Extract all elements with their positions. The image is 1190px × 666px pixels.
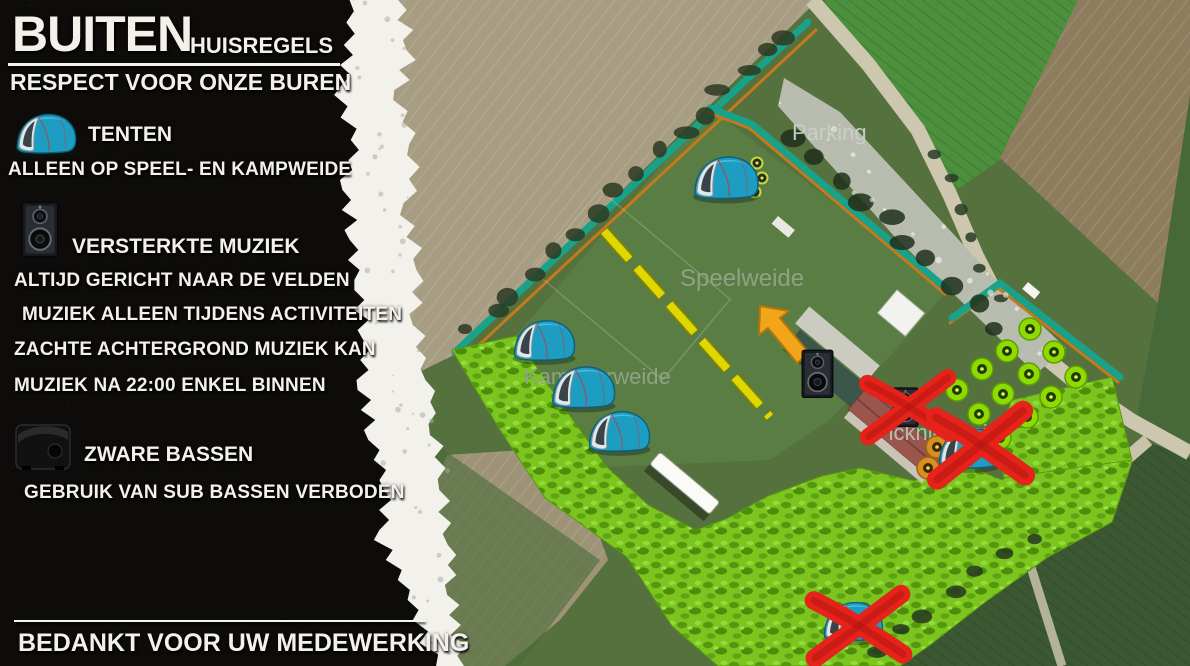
paper-speckle xyxy=(380,460,386,466)
paper-speckle xyxy=(363,1,368,6)
paper-speckle xyxy=(392,375,394,377)
panel-noise xyxy=(305,612,307,614)
paper-speckle xyxy=(398,225,401,228)
panel-noise xyxy=(331,382,333,384)
panel-noise xyxy=(120,661,122,663)
panel-noise xyxy=(316,539,318,541)
rule-heading-bassen: ZWARE BASSEN xyxy=(84,444,253,466)
paper-speckle xyxy=(355,66,359,70)
paper-speckle xyxy=(417,349,421,353)
tent-icon xyxy=(10,108,82,158)
poster-tagline: RESPECT VOOR ONZE BUREN xyxy=(10,70,351,94)
paper-speckle xyxy=(377,132,381,136)
paper-speckle xyxy=(426,600,429,603)
panel-noise xyxy=(307,261,309,263)
paper-speckle xyxy=(391,38,395,42)
panel-noise xyxy=(201,210,203,212)
rule-line: ALTIJD GERICHT NAAR DE VELDEN xyxy=(14,271,350,291)
poster: Parking Speelweide Kampeerweide Picknick… xyxy=(0,0,1190,666)
panel-noise xyxy=(261,451,263,453)
panel-noise xyxy=(39,595,41,597)
paper-speckle xyxy=(400,238,406,244)
paper-speckle xyxy=(402,449,407,454)
paper-speckle xyxy=(412,595,416,599)
torn-paper-edge xyxy=(0,0,1190,666)
paper-speckle xyxy=(429,418,434,423)
panel-noise xyxy=(165,474,167,476)
panel-noise xyxy=(291,590,293,592)
paper-speckle xyxy=(402,47,405,50)
paper-speckle xyxy=(383,208,387,212)
panel-noise xyxy=(167,415,169,417)
paper-speckle xyxy=(418,510,422,514)
panel-noise xyxy=(81,563,83,565)
paper-speckle xyxy=(398,253,401,256)
paper-speckle xyxy=(392,390,394,392)
panel-noise xyxy=(85,155,87,157)
rule-line: ZACHTE ACHTERGROND MUZIEK KAN xyxy=(14,340,376,360)
paper-speckle xyxy=(357,75,361,79)
paper-speckle xyxy=(391,270,395,274)
panel-noise xyxy=(13,635,15,637)
title-divider xyxy=(8,63,340,66)
paper-speckle xyxy=(438,576,444,582)
paper-speckle xyxy=(445,468,450,473)
paper-speckle xyxy=(384,16,390,22)
paper-speckle xyxy=(401,113,405,117)
paper-speckle xyxy=(378,148,381,151)
panel-noise xyxy=(292,517,294,519)
panel-noise xyxy=(283,615,285,617)
panel-noise xyxy=(330,232,332,234)
paper-speckle xyxy=(412,62,414,64)
panel-noise xyxy=(131,608,133,610)
paper-speckle xyxy=(365,268,371,274)
panel-noise xyxy=(60,181,62,183)
paper-speckle xyxy=(420,412,426,418)
subwoofer-icon xyxy=(14,418,74,472)
rule-line: MUZIEK ALLEEN TIJDENS ACTIVITEITEN xyxy=(22,305,402,325)
poster-title: BUITEN xyxy=(12,8,192,61)
rule-line: ALLEEN OP SPEEL- EN KAMPWEIDE xyxy=(8,160,351,180)
poster-footer: BEDANKT VOOR UW MEDEWERKING xyxy=(18,630,469,656)
rule-line: MUZIEK NA 22:00 ENKEL BINNEN xyxy=(14,376,326,396)
panel-noise xyxy=(110,473,112,475)
paper-speckle xyxy=(428,444,431,447)
footer-divider xyxy=(14,620,426,622)
poster-subtitle: HUISREGELS xyxy=(190,34,333,57)
panel-noise xyxy=(294,129,296,131)
panel-noise xyxy=(11,466,13,468)
paper-speckle xyxy=(406,427,409,430)
paper-speckle xyxy=(378,192,383,197)
panel-noise xyxy=(176,523,178,525)
paper-speckle xyxy=(399,403,403,407)
rule-heading-muziek: VERSTERKTE MUZIEK xyxy=(72,236,300,258)
panel-noise xyxy=(109,418,111,420)
paper-speckle xyxy=(414,506,417,509)
paper-speckle xyxy=(401,122,407,128)
panel-noise xyxy=(67,401,69,403)
panel-noise xyxy=(150,554,152,556)
rule-heading-tenten: TENTEN xyxy=(88,124,172,146)
paper-speckle xyxy=(372,154,377,159)
panel-noise xyxy=(218,115,220,117)
paper-speckle xyxy=(437,553,442,558)
rule-line: GEBRUIK VAN SUB BASSEN VERBODEN xyxy=(24,483,405,503)
paper-speckle xyxy=(412,413,414,415)
panel-noise xyxy=(108,554,110,556)
panel-noise xyxy=(218,360,220,362)
panel-noise xyxy=(303,293,305,295)
panel-noise xyxy=(147,109,149,111)
paper-speckle xyxy=(395,407,401,413)
speaker-icon xyxy=(18,200,62,258)
paper-speckle xyxy=(366,172,370,176)
paper-speckle xyxy=(407,196,409,198)
